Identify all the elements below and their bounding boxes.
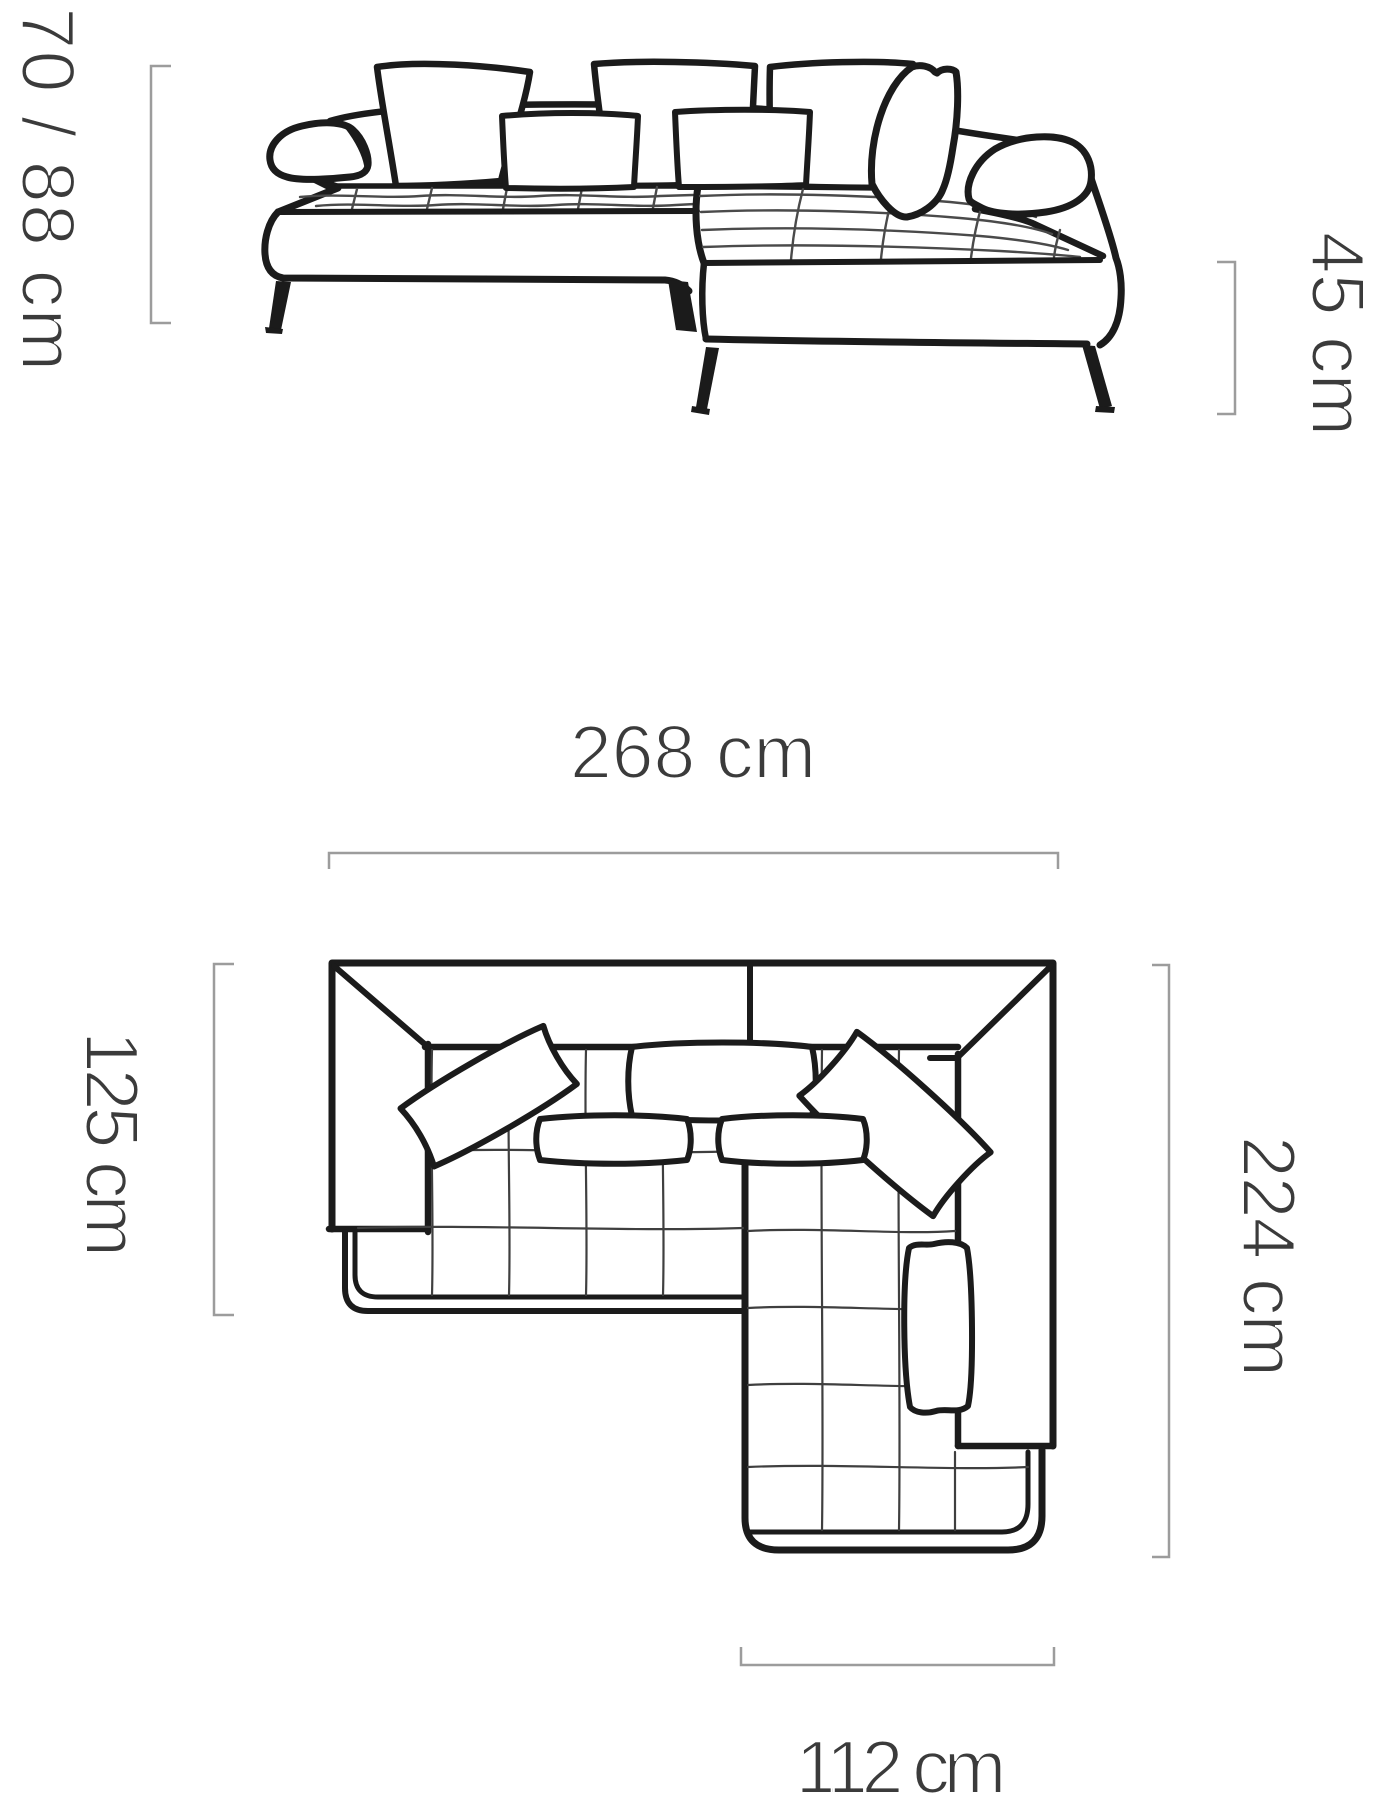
svg-text:268 cm: 268 cm — [570, 710, 816, 794]
svg-text:70 / 88 cm: 70 / 88 cm — [6, 7, 90, 372]
svg-text:112 cm: 112 cm — [796, 1725, 1002, 1807]
svg-text:224 cm: 224 cm — [1227, 1136, 1311, 1376]
svg-text:45 cm: 45 cm — [1296, 232, 1380, 436]
svg-text:125 cm: 125 cm — [70, 1031, 154, 1253]
